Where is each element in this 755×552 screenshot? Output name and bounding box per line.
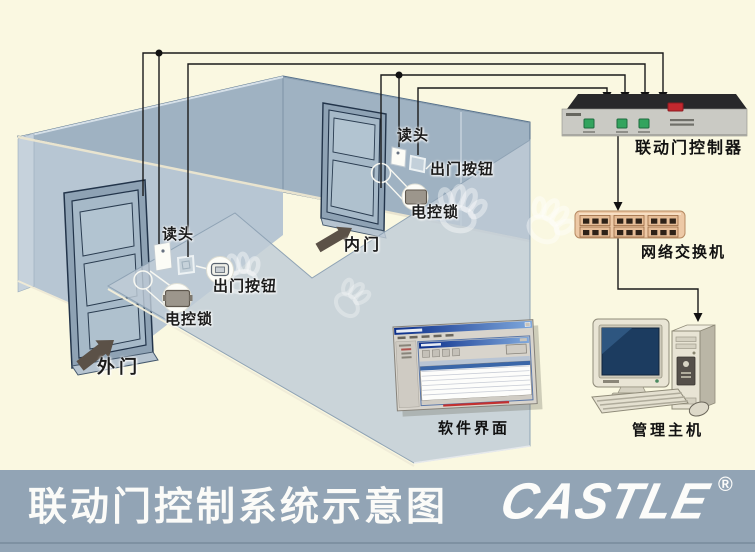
controller-switch-icon xyxy=(668,103,683,111)
arrowhead-host xyxy=(694,313,703,322)
brand-logo-text: CASTLE xyxy=(495,471,715,530)
inner-exit-button-icon xyxy=(410,156,425,172)
tower-side-face xyxy=(700,325,715,409)
controller-brand-mark xyxy=(566,113,581,116)
brand-logo: CASTLE ® xyxy=(502,472,752,542)
banner-title: 联动门控制系统示意图 xyxy=(28,476,448,532)
port-group-4 xyxy=(580,227,610,237)
monitor-brand-dash xyxy=(603,380,619,383)
label-outer-reader: 读头 xyxy=(162,227,194,244)
label-outer-exit-button: 出门按钮 xyxy=(213,279,277,296)
junction-dot-outer xyxy=(156,50,163,57)
port-group-6 xyxy=(648,227,678,237)
child-toolbar-button xyxy=(506,344,526,354)
left-wall-cap xyxy=(18,133,34,292)
controller-text-line-2 xyxy=(670,124,694,126)
title-banner: 联动门控制系统示意图 CASTLE ® xyxy=(0,470,755,552)
child-buttons xyxy=(520,338,527,341)
controller-button-label-2 xyxy=(616,131,628,133)
registered-trademark-icon: ® xyxy=(718,474,733,497)
port-group-3 xyxy=(648,216,678,226)
outer-lock-nub-right xyxy=(190,295,193,301)
software-window xyxy=(393,319,543,416)
port-group-2 xyxy=(614,216,644,226)
label-host: 管理主机 xyxy=(632,423,704,440)
port-group-5 xyxy=(614,227,644,237)
tower-panel-slot-1 xyxy=(681,372,691,374)
controller-button-label-3 xyxy=(638,131,650,133)
port-group-1 xyxy=(580,216,610,226)
label-inner-door: 内门 xyxy=(344,237,382,255)
controller-button-3 xyxy=(639,119,649,128)
tower-panel-knob xyxy=(683,361,689,367)
scene-canvas xyxy=(0,0,755,470)
label-outer-lock: 电控锁 xyxy=(165,312,213,329)
arrowhead-switch xyxy=(614,202,623,211)
inner-card-reader-icon xyxy=(391,147,406,167)
controller-bottom-shadow xyxy=(562,134,747,136)
controller-button-2 xyxy=(617,119,627,128)
label-network-switch: 网络交换机 xyxy=(641,245,726,262)
outer-lock-nub-left xyxy=(163,295,166,301)
junction-dot-inner xyxy=(396,72,403,79)
inner-reader-led xyxy=(397,152,400,155)
outer-door-panel-top xyxy=(80,203,134,256)
label-outer-door: 外门 xyxy=(97,358,141,378)
window-tree-panel xyxy=(396,341,419,408)
inner-door-panel-bottom xyxy=(331,160,374,216)
switch-top-highlight xyxy=(579,213,681,215)
outer-lock-body-icon xyxy=(166,291,190,307)
controller-text-line-1 xyxy=(670,119,694,121)
inner-lock-body-icon xyxy=(406,190,427,204)
outer-reader-led xyxy=(161,249,164,252)
diagram-root: 读头 出门按钮 电控锁 外门 读头 出门按钮 电控锁 内门 联动门控制器 网络交… xyxy=(0,0,755,552)
controller-button-1 xyxy=(584,119,594,128)
outer-exit-button-icon xyxy=(178,256,194,274)
label-software: 软件界面 xyxy=(438,421,510,438)
management-host xyxy=(592,319,715,419)
tower-panel-slot-2 xyxy=(681,376,691,378)
tower-power-button xyxy=(693,352,696,355)
label-inner-lock: 电控锁 xyxy=(411,205,459,222)
inner-door xyxy=(321,103,386,238)
outer-button-zoom-inner xyxy=(216,267,225,273)
monitor-power-led xyxy=(655,379,659,383)
tower-drive-slot-2 xyxy=(676,344,696,349)
tower-drive-slot-1 xyxy=(676,337,696,342)
label-controller: 联动门控制器 xyxy=(635,140,743,158)
label-inner-exit-button: 出门按钮 xyxy=(430,162,494,179)
network-switch xyxy=(575,211,685,238)
controller-button-label-1 xyxy=(583,131,595,133)
banner-divider xyxy=(0,542,755,544)
controller-top-face xyxy=(567,94,747,109)
door-controller xyxy=(562,94,747,136)
label-inner-reader: 读头 xyxy=(397,128,429,145)
window-close-button xyxy=(525,322,530,326)
outer-card-reader-icon xyxy=(154,242,172,271)
